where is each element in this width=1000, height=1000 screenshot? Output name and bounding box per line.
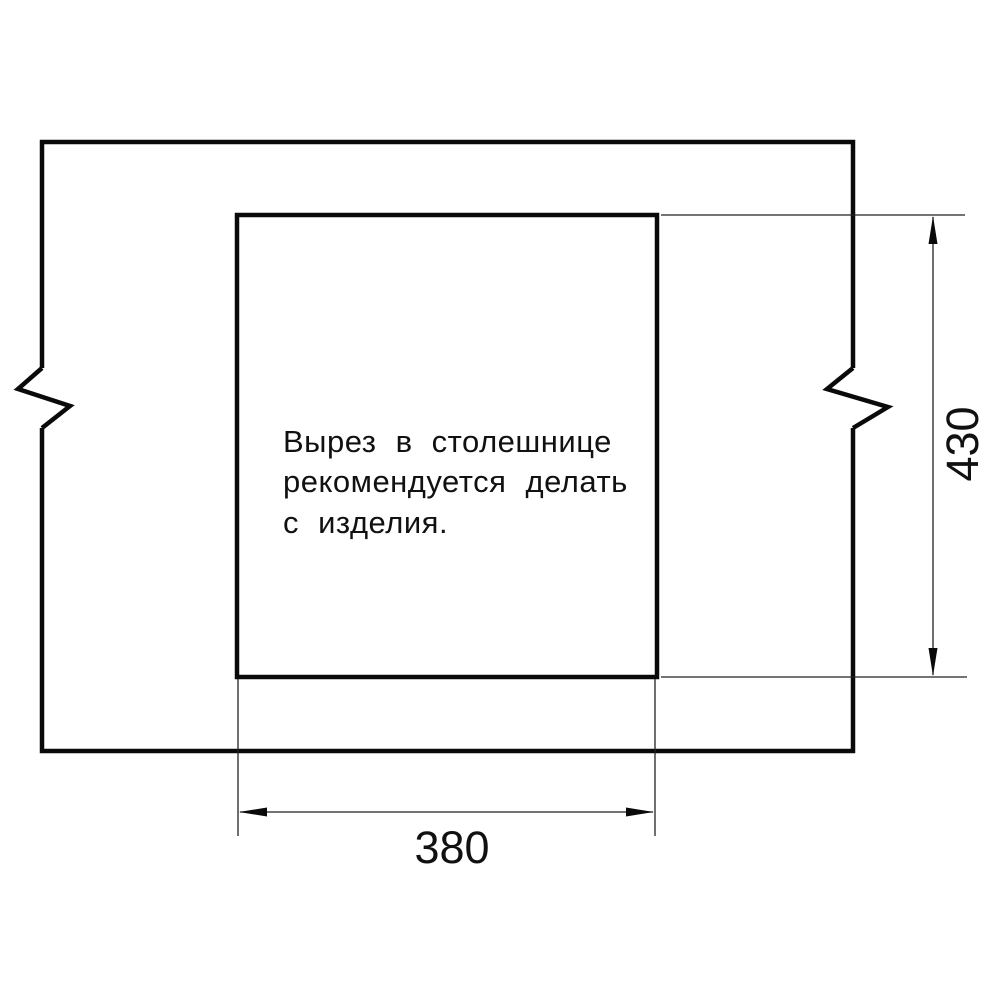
drawing-canvas: Вырез в столешнице рекомендуется делать … (0, 0, 1000, 1000)
right-break-symbol (827, 368, 888, 428)
width-arrow-right (626, 808, 654, 817)
height-arrow-top (929, 216, 938, 244)
technical-drawing-page: Вырез в столешнице рекомендуется делать … (0, 0, 1000, 1000)
width-dimension-label: 380 (414, 822, 489, 873)
note-line-2: рекомендуется делать (283, 464, 628, 499)
note-text: Вырез в столешнице рекомендуется делать … (283, 424, 628, 540)
note-line-1: Вырез в столешнице (283, 424, 612, 459)
height-arrow-bottom (929, 648, 938, 676)
note-line-3: с изделия. (283, 505, 448, 540)
height-dimension-label: 430 (937, 406, 988, 481)
height-dimension: 430 (661, 215, 988, 677)
left-break-symbol (18, 368, 70, 428)
width-arrow-left (239, 808, 267, 817)
countertop-outline-upper (42, 142, 853, 368)
width-dimension: 380 (238, 679, 655, 873)
